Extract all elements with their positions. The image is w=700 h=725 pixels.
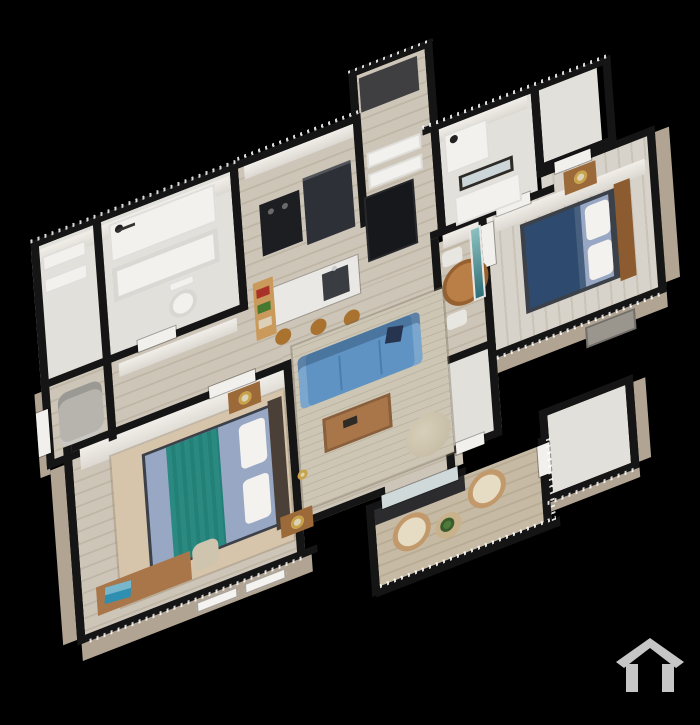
- house-logo-icon: [608, 634, 692, 694]
- floor-plan-render: [0, 0, 700, 700]
- apartment-plan: [12, 0, 700, 725]
- sofa-pillow: [385, 325, 404, 344]
- wall: [602, 55, 616, 146]
